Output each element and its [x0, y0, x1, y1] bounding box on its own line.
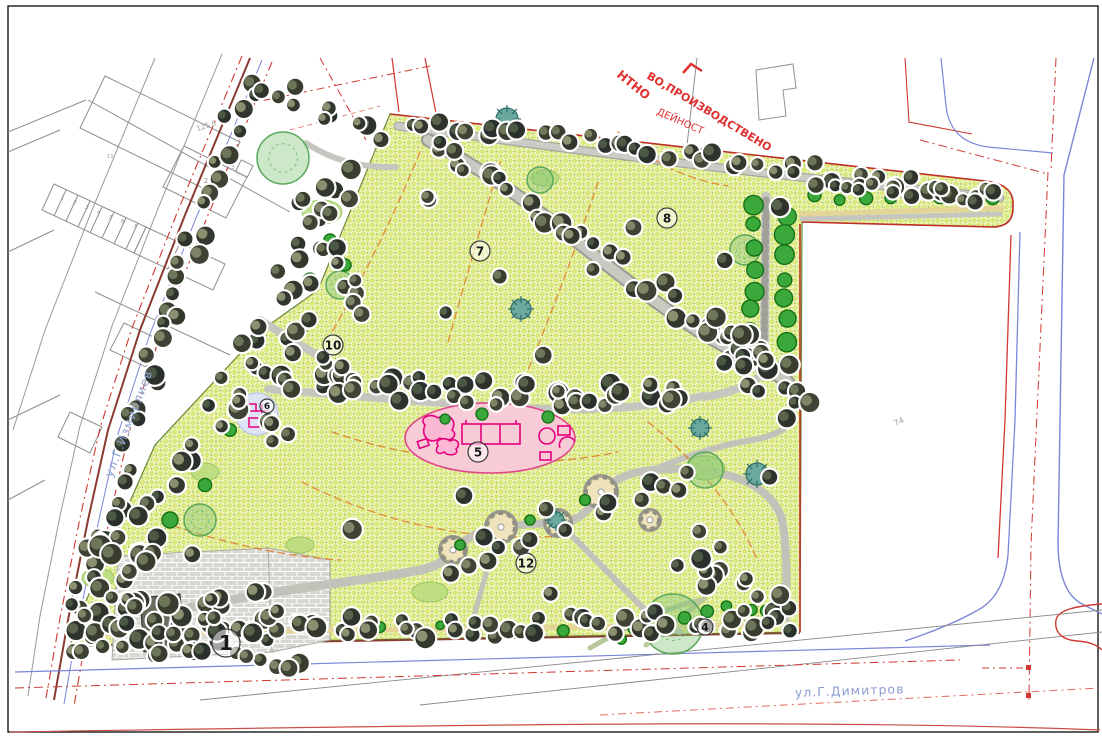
svg-text:6: 6: [264, 402, 270, 412]
garage-number: 6: [120, 219, 126, 226]
svg-text:1: 1: [219, 631, 233, 655]
area-marker-12: 12: [516, 553, 536, 573]
area-marker-10: 10: [323, 335, 343, 355]
svg-text:7: 7: [476, 244, 484, 258]
area-marker-4: 4: [697, 619, 713, 635]
svg-text:4: 4: [701, 621, 709, 634]
parcel-label: 3: [231, 165, 234, 171]
parcel-label: 125.6: [196, 119, 218, 133]
garage-number: 2: [72, 200, 78, 207]
garage-number: 1: [60, 195, 66, 202]
zone-check-mark: [683, 64, 702, 73]
garage-number: 7: [132, 224, 138, 231]
area-marker-5: 5: [468, 442, 488, 462]
area-marker-7: 7: [470, 241, 490, 261]
zone-text-line2: НТНО: [614, 67, 653, 102]
svg-text:10: 10: [325, 338, 342, 352]
parcel-label: 74: [892, 416, 905, 428]
street-label-bottom: ул.Г.Димитров: [795, 681, 905, 700]
parcel-label: 13: [107, 154, 113, 160]
area-marker-8: 8: [657, 208, 677, 228]
svg-text:12: 12: [518, 556, 535, 570]
svg-text:8: 8: [663, 211, 671, 225]
area-marker-6: 6: [260, 399, 274, 413]
svg-text:5: 5: [474, 445, 482, 459]
area-marker-1: 1: [212, 629, 240, 657]
garage-number: 5: [108, 215, 114, 222]
plan-sheet: 1 4 5 6 7 8 10 12125.62313741234567 ул.Г…: [0, 0, 1102, 738]
garage-number: 4: [96, 210, 102, 217]
garage-number: 3: [84, 205, 90, 212]
site-plan: 1 4 5 6 7 8 10 12125.62313741234567 ул.Г…: [0, 0, 1102, 738]
playground-area: [405, 403, 575, 473]
parcel-label: 2: [204, 177, 208, 185]
